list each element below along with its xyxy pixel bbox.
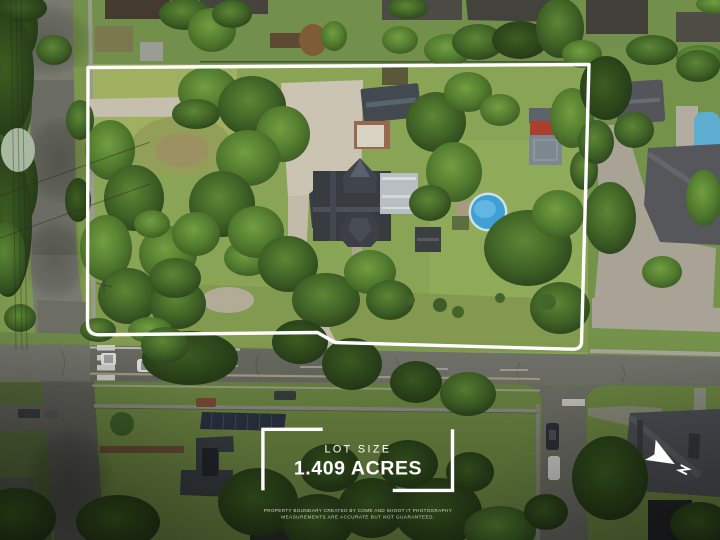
svg-text:1.409 ACRES: 1.409 ACRES: [294, 458, 422, 480]
svg-text:LOT SIZE: LOT SIZE: [324, 444, 391, 456]
svg-text:MEASUREMENTS ARE ACCURATE BUT: MEASUREMENTS ARE ACCURATE BUT NOT GUARAN…: [281, 515, 434, 520]
svg-text:PROPERTY BOUNDARY CREATED BY C: PROPERTY BOUNDARY CREATED BY COME AND SH…: [264, 508, 452, 513]
